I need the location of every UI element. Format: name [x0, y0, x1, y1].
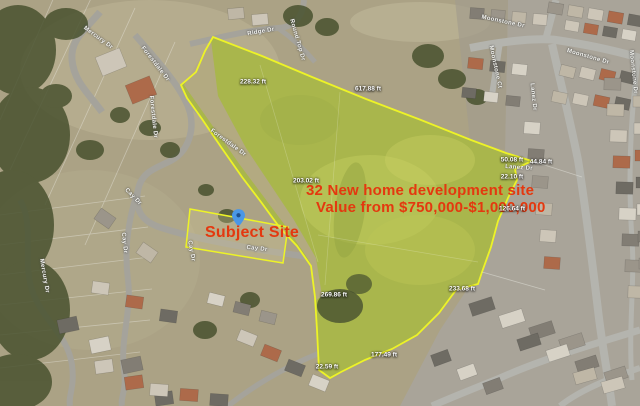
- dimension-label: 126.64 ft: [499, 206, 525, 213]
- pin-dot: [236, 213, 240, 217]
- subject-site-annotation: Subject Site: [205, 224, 299, 242]
- dimension-label: 177.49 ft: [371, 352, 397, 359]
- dimension-label: 44.84 ft: [530, 159, 552, 166]
- aerial-map-view: 32 New home development site Value from …: [0, 0, 640, 406]
- dimension-label: 203.02 ft: [293, 178, 319, 185]
- dimension-label: 233.68 ft: [449, 286, 475, 293]
- dimension-label: 617.88 ft: [355, 86, 381, 93]
- dimension-label: 228.32 ft: [240, 79, 266, 86]
- headline-annotation: 32 New home development site: [306, 182, 534, 199]
- dimension-label: 22.59 ft: [316, 364, 338, 371]
- dimension-label: 22.10 ft: [501, 174, 523, 181]
- dimension-label: 50.08 ft: [501, 157, 523, 164]
- dimension-label: 269.86 ft: [321, 292, 347, 299]
